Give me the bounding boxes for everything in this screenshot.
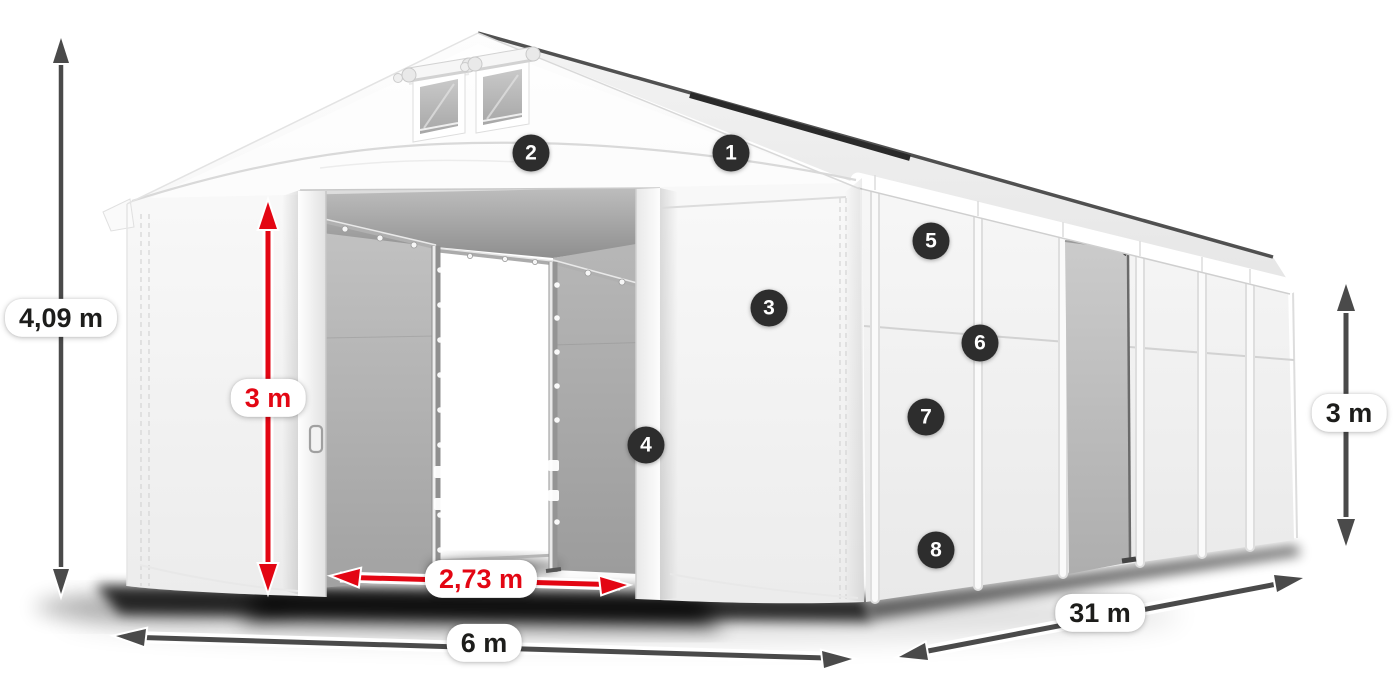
interior-through-opening [436, 252, 553, 576]
callout-4-badge[interactable]: 4 [628, 427, 665, 464]
side-height-value: 3 m [1326, 398, 1373, 428]
door-handle [310, 426, 322, 452]
callout-5-number: 5 [925, 231, 937, 252]
entrance-height-value: 3 m [245, 383, 292, 413]
entrance-width-value: 2,73 m [439, 564, 523, 594]
side-height-label: 3 m [1312, 394, 1387, 432]
callout-7-badge[interactable]: 7 [908, 399, 945, 436]
callout-4-number: 4 [640, 435, 652, 456]
callout-2-badge[interactable]: 2 [513, 135, 550, 172]
callout-5-badge[interactable]: 5 [913, 223, 950, 260]
side-door-opening [1065, 238, 1136, 574]
entrance-height-label: 3 m [231, 379, 306, 417]
callout-1-number: 1 [725, 143, 737, 164]
front-width-label: 6 m [447, 624, 522, 662]
callout-8-badge[interactable]: 8 [918, 532, 955, 569]
callout-3-badge[interactable]: 3 [751, 290, 788, 327]
callout-7-number: 7 [920, 407, 932, 428]
callout-3-number: 3 [763, 298, 775, 319]
total-height-value: 4,09 m [19, 303, 103, 333]
eave-corner-flap [103, 199, 134, 231]
tent-dimension-diagram: 4,09 m 3 m 2,73 m 6 m 31 m 3 m 1 2 3 4 5… [0, 0, 1400, 700]
side-length-label: 31 m [1055, 594, 1145, 632]
entrance-width-label: 2,73 m [425, 560, 537, 598]
total-height-label: 4,09 m [5, 299, 117, 337]
callout-8-number: 8 [930, 540, 942, 561]
callout-1-badge[interactable]: 1 [713, 135, 750, 172]
tent-illustration [0, 0, 1400, 700]
front-width-value: 6 m [461, 628, 508, 658]
side-length-value: 31 m [1069, 598, 1131, 628]
callout-6-badge[interactable]: 6 [962, 325, 999, 362]
callout-6-number: 6 [974, 333, 986, 354]
callout-2-number: 2 [525, 143, 537, 164]
interior-left-panel [320, 233, 436, 588]
tent-interior [300, 188, 660, 588]
front-door-right-leaf [636, 188, 660, 600]
